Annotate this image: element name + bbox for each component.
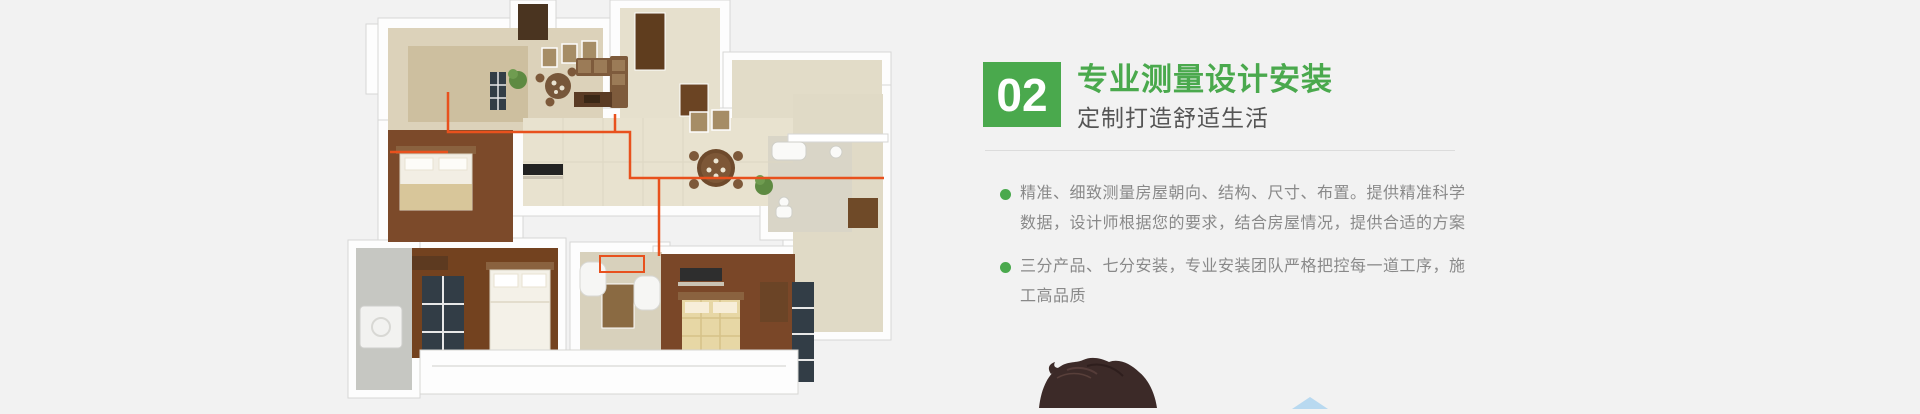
floorplan-image xyxy=(328,0,893,400)
title-group: 专业测量设计安装 定制打造舒适生活 xyxy=(1077,62,1333,132)
roof-triangle-svg xyxy=(1292,397,1328,409)
bullet-item-2: 三分产品、七分安装，专业安装团队严格把控每一道工序，施 工高品质 xyxy=(1000,252,1478,312)
bullet-list: 精准、细致测量房屋朝向、结构、尺寸、布置。提供精准科学 数据，设计师根据您的要求… xyxy=(1000,179,1478,325)
step-number-badge: 02 xyxy=(983,62,1061,127)
bullet-text-line: 精准、细致测量房屋朝向、结构、尺寸、布置。提供精准科学 xyxy=(1020,179,1466,209)
bullet-dot-icon xyxy=(1000,189,1011,200)
bullet-text: 三分产品、七分安装，专业安装团队严格把控每一道工序，施 工高品质 xyxy=(1020,252,1466,312)
bullet-text-line: 数据，设计师根据您的要求，结合房屋情况，提供合适的方案 xyxy=(1020,209,1466,239)
bullet-item-1: 精准、细致测量房屋朝向、结构、尺寸、布置。提供精准科学 数据，设计师根据您的要求… xyxy=(1000,179,1478,239)
content-block: 02 专业测量设计安装 定制打造舒适生活 xyxy=(983,62,1473,132)
roof-tip-graphic xyxy=(1292,396,1328,408)
bullet-text: 精准、细致测量房屋朝向、结构、尺寸、布置。提供精准科学 数据，设计师根据您的要求… xyxy=(1020,179,1466,239)
person-photo-top xyxy=(1037,356,1159,408)
floorplan-svg xyxy=(328,0,893,400)
section-header: 02 专业测量设计安装 定制打造舒适生活 xyxy=(983,62,1473,132)
section-professional-measure-install: 02 专业测量设计安装 定制打造舒适生活 精准、细致测量房屋朝向、结构、尺寸、布… xyxy=(0,0,1920,408)
divider-line xyxy=(985,150,1455,151)
section-title: 专业测量设计安装 xyxy=(1077,62,1333,98)
bullet-dot-icon xyxy=(1000,262,1011,273)
bullet-text-line: 工高品质 xyxy=(1020,282,1466,312)
section-subtitle: 定制打造舒适生活 xyxy=(1077,104,1333,132)
bullet-text-line: 三分产品、七分安装，专业安装团队严格把控每一道工序，施 xyxy=(1020,252,1466,282)
person-hair-svg xyxy=(1037,356,1159,408)
